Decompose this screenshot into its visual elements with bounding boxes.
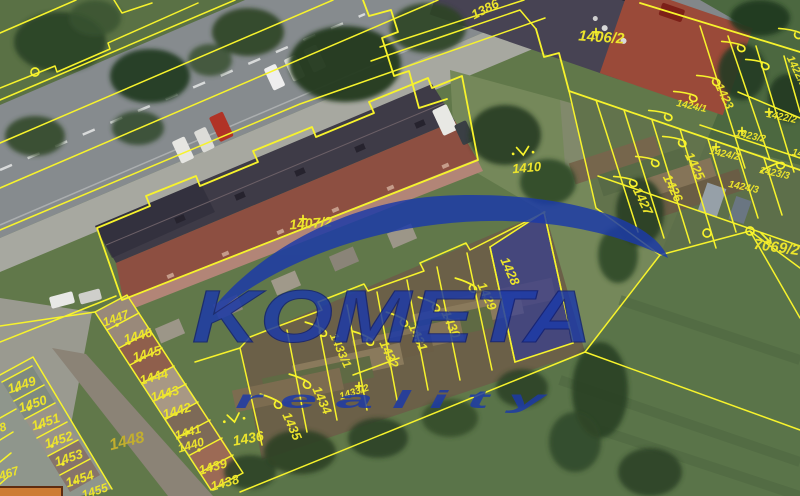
map-viewport[interactable]: 13861406/214101407/21424/114231422/11422… xyxy=(0,0,800,496)
parcel-label-1410: 1410 xyxy=(512,159,543,177)
kometa-tagline-text: r e a l i t y xyxy=(235,386,548,414)
cadastral-map: 13861406/214101407/21424/114231422/11422… xyxy=(0,0,800,496)
kometa-brand-text: KOMETA xyxy=(192,275,592,358)
cutoff-orange-element xyxy=(0,487,62,496)
parcel-label-1406-2: 1406/2 xyxy=(578,27,626,47)
